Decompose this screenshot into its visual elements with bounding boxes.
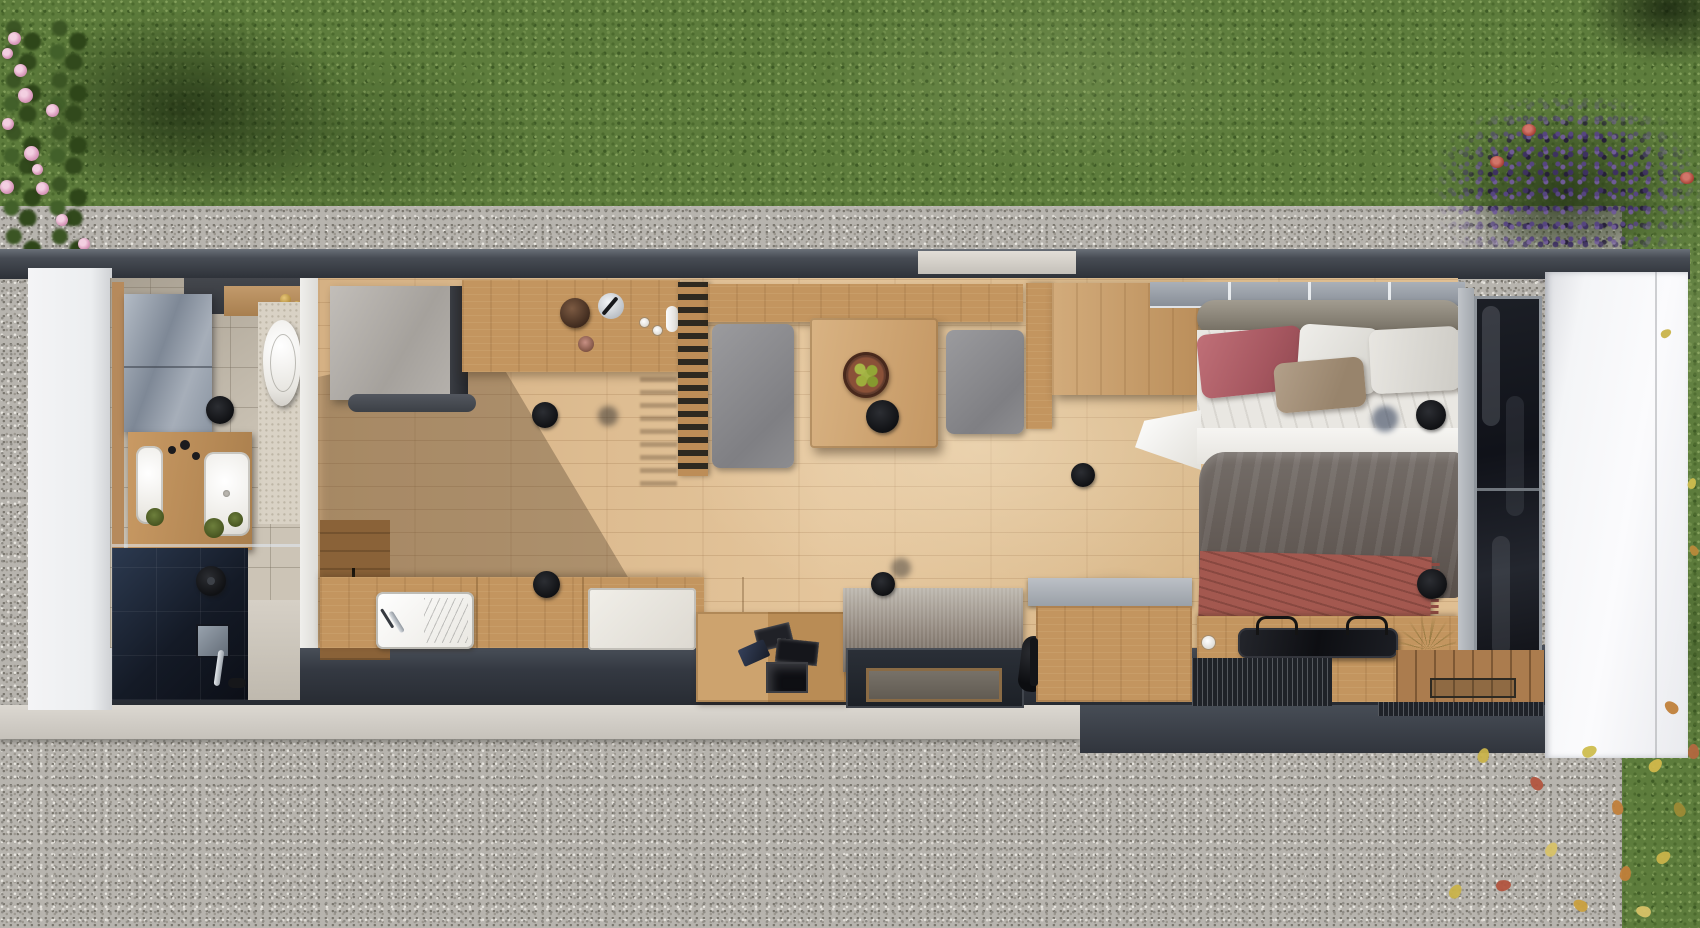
ceiling-light <box>871 572 895 596</box>
cube-side-table-top <box>1028 578 1192 606</box>
pink-flower <box>0 180 14 194</box>
light-shadow <box>1372 406 1398 432</box>
leaf <box>1688 744 1699 759</box>
kettle <box>598 293 624 319</box>
leaf <box>1571 897 1589 914</box>
small-bowl <box>578 336 594 352</box>
slatted-partition <box>678 282 708 476</box>
drainage-grate <box>1192 658 1332 706</box>
light-shadow <box>598 406 618 426</box>
pink-flower <box>36 182 49 195</box>
red-flower <box>1680 172 1694 184</box>
ceiling-light <box>532 402 558 428</box>
pink-flower <box>2 118 14 130</box>
ceiling-light <box>1416 400 1446 430</box>
light-shadow <box>891 558 911 578</box>
faucet <box>168 446 176 454</box>
rain-shower-head <box>196 566 226 596</box>
window-sill-wall <box>1458 288 1474 690</box>
bathroom-wood-frame <box>112 282 124 548</box>
walk-in-shower <box>112 548 248 700</box>
bathroom-wall-light <box>206 396 234 424</box>
cooktop-block <box>588 588 696 650</box>
tray-handle <box>1256 616 1298 635</box>
red-flower <box>1490 156 1504 168</box>
flower-bed-foliage <box>0 18 95 258</box>
fruit-bowl <box>843 352 889 398</box>
cup <box>640 318 649 327</box>
ceiling-light <box>1417 569 1447 599</box>
faucet <box>180 440 190 450</box>
left-end-wall <box>28 268 112 710</box>
deck-doormat <box>1430 678 1516 698</box>
cup <box>653 326 662 335</box>
kitchen-unit-front <box>348 394 476 412</box>
pink-flower <box>24 146 39 161</box>
pink-flower <box>18 88 33 103</box>
pink-flower <box>14 64 27 77</box>
framed-picture <box>766 662 808 693</box>
stool <box>866 400 899 433</box>
shower-glass-partition <box>112 544 300 547</box>
upper-cabinet-band <box>708 284 1023 322</box>
tree-overhang-shadow <box>1555 0 1700 84</box>
red-flower <box>1522 124 1536 136</box>
dish <box>666 306 678 332</box>
bench-seat-right <box>946 330 1024 434</box>
cube-side-table <box>1036 606 1192 702</box>
kitchen-sink <box>376 592 474 649</box>
leaf <box>1543 840 1560 858</box>
tray-handle <box>1346 616 1388 635</box>
doormat <box>866 668 1002 702</box>
potted-plant <box>204 518 224 538</box>
tan-pillow <box>1273 356 1367 414</box>
right-end-wall <box>1545 272 1688 758</box>
leaf <box>1527 774 1545 793</box>
faucet <box>192 452 200 460</box>
white-pillow <box>1368 326 1461 395</box>
leaf <box>1495 879 1512 892</box>
mirror-cabinet <box>124 294 212 432</box>
bathroom-side-wall <box>248 600 300 700</box>
cube-table-bracket <box>1030 638 1038 686</box>
tall-kitchen-unit <box>330 286 450 400</box>
bench-seat-left <box>712 324 794 468</box>
ceiling-light <box>533 571 560 598</box>
roof-edge <box>0 249 1690 279</box>
wood-divider-column <box>1026 283 1052 429</box>
concrete-step <box>0 705 1080 739</box>
potted-plant <box>228 512 243 527</box>
pink-flower <box>2 48 13 59</box>
drainage-grate <box>1378 702 1544 716</box>
pink-flower <box>46 104 59 117</box>
leaf <box>1447 882 1465 901</box>
coffee-machine <box>560 298 590 328</box>
picture-window <box>1474 296 1542 686</box>
potted-plant <box>146 508 164 526</box>
pink-flower <box>56 214 68 226</box>
ceiling-light <box>1071 463 1095 487</box>
scene <box>0 0 1700 928</box>
roof-beam <box>918 251 1076 274</box>
cup <box>1202 636 1215 649</box>
shower-handle <box>228 678 246 688</box>
pink-flower <box>32 164 43 175</box>
pink-flower <box>8 32 21 45</box>
